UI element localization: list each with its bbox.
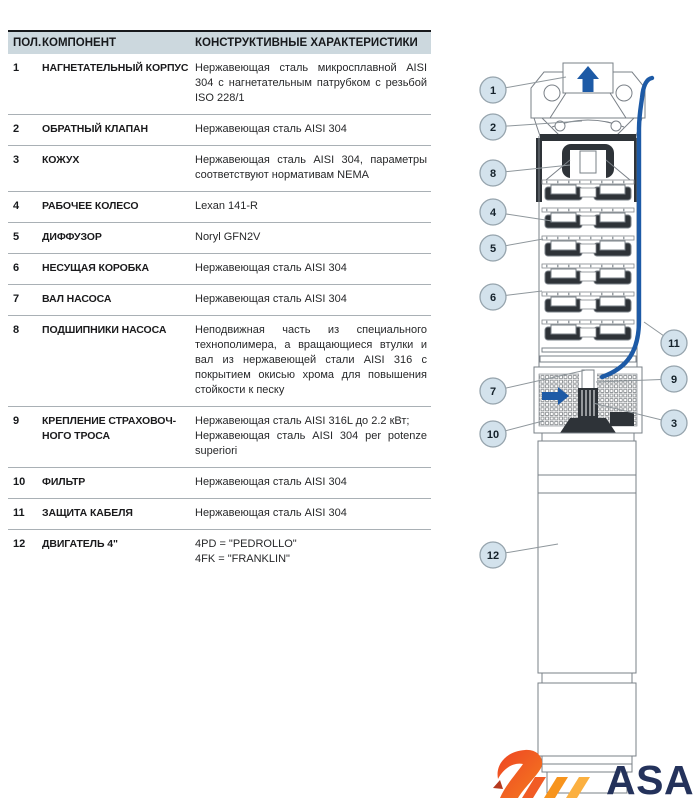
component-spec: 4PD = "PEDROLLO" 4FK = "FRANKLIN"	[195, 537, 431, 567]
row-number: 3	[13, 153, 42, 183]
component-table: ПОЛ. КОМПОНЕНТ КОНСТРУКТИВНЫЕ ХАРАКТЕРИС…	[8, 30, 431, 575]
brand-text: ASAO	[606, 762, 694, 800]
callout-10: 10	[480, 421, 506, 447]
brand-mark-icon	[492, 748, 604, 800]
table-header: ПОЛ. КОМПОНЕНТ КОНСТРУКТИВНЫЕ ХАРАКТЕРИС…	[8, 30, 431, 54]
component-name: ФИЛЬТР	[42, 475, 195, 490]
table-row: 5 ДИФФУЗОР Noryl GFN2V	[8, 223, 431, 254]
component-spec: Нержавеющая сталь AISI 304	[195, 475, 431, 490]
component-spec: Нержавеющая сталь AISI 304	[195, 122, 431, 137]
component-name: ДИФФУЗОР	[42, 230, 195, 245]
header-pos: ПОЛ.	[13, 37, 42, 49]
component-name: ПОДШИПНИКИ НАСОСА	[42, 323, 195, 398]
component-name: КОЖУХ	[42, 153, 195, 183]
header-component: КОМПОНЕНТ	[42, 37, 195, 49]
row-number: 9	[13, 414, 42, 459]
callout-4: 4	[480, 199, 506, 225]
callout-number: 10	[487, 429, 499, 441]
table-row: 7 ВАЛ НАСОСА Нержавеющая сталь AISI 304	[8, 285, 431, 316]
row-number: 6	[13, 261, 42, 276]
table-row: 6 НЕСУЩАЯ КОРОБКА Нержавеющая сталь AISI…	[8, 254, 431, 285]
callout-number: 7	[490, 386, 496, 398]
component-name: ОБРАТНЫЙ КЛАПАН	[42, 122, 195, 137]
table-row: 3 КОЖУХ Нержавеющая сталь AISI 304, пара…	[8, 146, 431, 192]
table-row: 1 НАГНЕТАТЕЛЬНЫЙ КОРПУС Нержавеющая стал…	[8, 54, 431, 115]
callout-7: 7	[480, 378, 506, 404]
callout-8: 8	[480, 160, 506, 186]
table-row: 12 ДВИГАТЕЛЬ 4" 4PD = "PEDROLLO" 4FK = "…	[8, 530, 431, 575]
component-name: НАГНЕТАТЕЛЬНЫЙ КОРПУС	[42, 61, 195, 106]
callout-number: 6	[490, 292, 496, 304]
component-spec: Нержавеющая сталь AISI 304, параметры со…	[195, 153, 431, 183]
callout-5: 5	[480, 235, 506, 261]
component-spec: Нержавеющая сталь AISI 304	[195, 261, 431, 276]
callout-1: 1	[480, 77, 506, 103]
catalog-page: { "table": { "headers": { "pos": "ПОЛ.",…	[0, 0, 694, 800]
component-name: КРЕПЛЕНИЕ СТРАХОВОЧ- НОГО ТРОСА	[42, 414, 195, 459]
row-number: 5	[13, 230, 42, 245]
component-spec: Нержавеющая сталь AISI 304	[195, 506, 431, 521]
pump-body	[531, 63, 645, 793]
component-name: ДВИГАТЕЛЬ 4"	[42, 537, 195, 567]
component-name: НЕСУЩАЯ КОРОБКА	[42, 261, 195, 276]
component-spec: Lexan 141-R	[195, 199, 431, 214]
table-row: 8 ПОДШИПНИКИ НАСОСА Неподвижная часть из…	[8, 316, 431, 407]
callout-number: 1	[490, 85, 496, 97]
component-spec: Нержавеющая сталь AISI 316L до 2.2 кВт; …	[195, 414, 431, 459]
brand-logo: ASAO	[492, 746, 694, 800]
callout-11: 11	[661, 330, 687, 356]
header-specs: КОНСТРУКТИВНЫЕ ХАРАКТЕРИСТИКИ	[195, 37, 431, 49]
row-number: 11	[13, 506, 42, 521]
component-spec: Noryl GFN2V	[195, 230, 431, 245]
row-number: 4	[13, 199, 42, 214]
callout-6: 6	[480, 284, 506, 310]
component-spec: Неподвижная часть из специального техноп…	[195, 323, 431, 398]
callout-12: 12	[480, 542, 506, 568]
component-spec: Нержавеющая сталь микросплавной AISI 304…	[195, 61, 431, 106]
row-number: 1	[13, 61, 42, 106]
component-spec: Нержавеющая сталь AISI 304	[195, 292, 431, 307]
row-number: 7	[13, 292, 42, 307]
pump-cutaway-diagram: 1 2 8 4 5 6 7 10 12 11 9 3	[430, 30, 694, 800]
callout-number: 2	[490, 122, 496, 134]
callout-number: 12	[487, 550, 499, 562]
table-row: 2 ОБРАТНЫЙ КЛАПАН Нержавеющая сталь AISI…	[8, 115, 431, 146]
callout-3: 3	[661, 410, 687, 436]
component-name: РАБОЧЕЕ КОЛЕСО	[42, 199, 195, 214]
table-row: 9 КРЕПЛЕНИЕ СТРАХОВОЧ- НОГО ТРОСА Нержав…	[8, 407, 431, 468]
callout-2: 2	[480, 114, 506, 140]
component-name: ЗАЩИТА КАБЕЛЯ	[42, 506, 195, 521]
callout-number: 11	[668, 338, 680, 350]
callout-number: 3	[671, 418, 677, 430]
table-row: 10 ФИЛЬТР Нержавеющая сталь AISI 304	[8, 468, 431, 499]
row-number: 8	[13, 323, 42, 398]
callout-9: 9	[661, 366, 687, 392]
callout-number: 8	[490, 168, 496, 180]
row-number: 2	[13, 122, 42, 137]
table-row: 4 РАБОЧЕЕ КОЛЕСО Lexan 141-R	[8, 192, 431, 223]
row-number: 12	[13, 537, 42, 567]
row-number: 10	[13, 475, 42, 490]
component-name: ВАЛ НАСОСА	[42, 292, 195, 307]
callout-number: 5	[490, 243, 496, 255]
callout-number: 4	[490, 207, 497, 219]
table-row: 11 ЗАЩИТА КАБЕЛЯ Нержавеющая сталь AISI …	[8, 499, 431, 530]
callout-number: 9	[671, 374, 677, 386]
